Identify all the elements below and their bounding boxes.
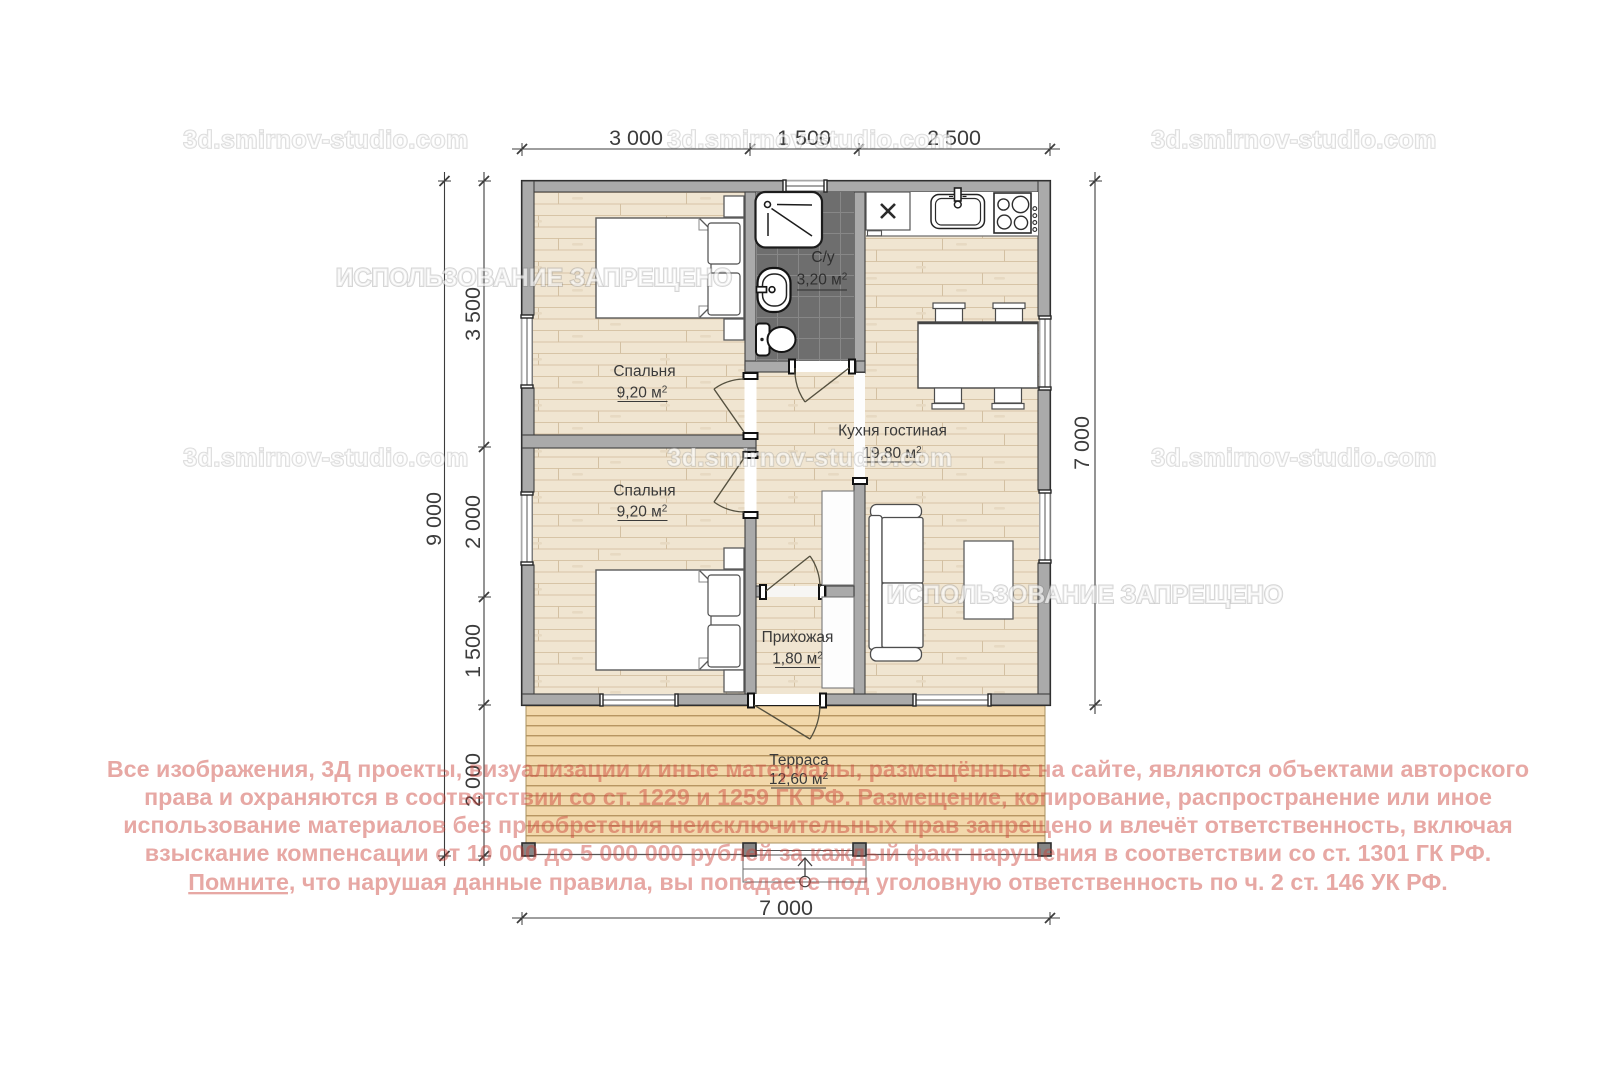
svg-text:3d.smirnov-studio.com: 3d.smirnov-studio.com: [667, 444, 953, 472]
svg-text:использование материалов без п: использование материалов без приобретени…: [123, 812, 1513, 838]
svg-text:Кухня гостиная: Кухня гостиная: [838, 423, 947, 440]
svg-text:3,20 м2: 3,20 м2: [797, 272, 848, 289]
svg-text:Спальня: Спальня: [613, 483, 675, 500]
svg-text:3 000: 3 000: [609, 126, 663, 150]
svg-text:3d.smirnov-studio.com: 3d.smirnov-studio.com: [183, 126, 469, 154]
svg-text:9,20 м2: 9,20 м2: [617, 504, 668, 521]
svg-text:3d.smirnov-studio.com: 3d.smirnov-studio.com: [667, 126, 953, 154]
svg-text:1,80 м2: 1,80 м2: [772, 651, 823, 668]
svg-text:7 000: 7 000: [1070, 416, 1094, 470]
svg-text:ИСПОЛЬЗОВАНИЕ ЗАПРЕЩЕНО: ИСПОЛЬЗОВАНИЕ ЗАПРЕЩЕНО: [887, 582, 1283, 609]
svg-text:ИСПОЛЬЗОВАНИЕ ЗАПРЕЩЕНО: ИСПОЛЬЗОВАНИЕ ЗАПРЕЩЕНО: [336, 265, 732, 292]
svg-text:2 000: 2 000: [461, 495, 485, 549]
svg-text:Прихожая: Прихожая: [762, 629, 834, 646]
svg-text:Спальня: Спальня: [613, 363, 675, 380]
svg-text:Помните, что нарушая данные пр: Помните, что нарушая данные правила, вы …: [188, 869, 1448, 895]
svg-text:права и охраняются в соответст: права и охраняются в соответствии со ст.…: [144, 784, 1492, 810]
svg-text:3d.smirnov-studio.com: 3d.smirnov-studio.com: [1151, 126, 1437, 154]
svg-text:1 500: 1 500: [461, 624, 485, 678]
svg-text:Все изображения, 3Д проекты, в: Все изображения, 3Д проекты, визуализаци…: [107, 756, 1529, 782]
svg-text:3 500: 3 500: [461, 287, 485, 341]
svg-text:взыскание компенсации от 10 00: взыскание компенсации от 10 000 до 5 000…: [145, 840, 1492, 866]
svg-text:9,20 м2: 9,20 м2: [617, 385, 668, 402]
svg-text:С/у: С/у: [811, 249, 835, 266]
svg-text:3d.smirnov-studio.com: 3d.smirnov-studio.com: [1151, 444, 1437, 472]
svg-text:9 000: 9 000: [422, 492, 446, 546]
svg-text:3d.smirnov-studio.com: 3d.smirnov-studio.com: [183, 444, 469, 472]
svg-text:7 000: 7 000: [759, 896, 813, 920]
